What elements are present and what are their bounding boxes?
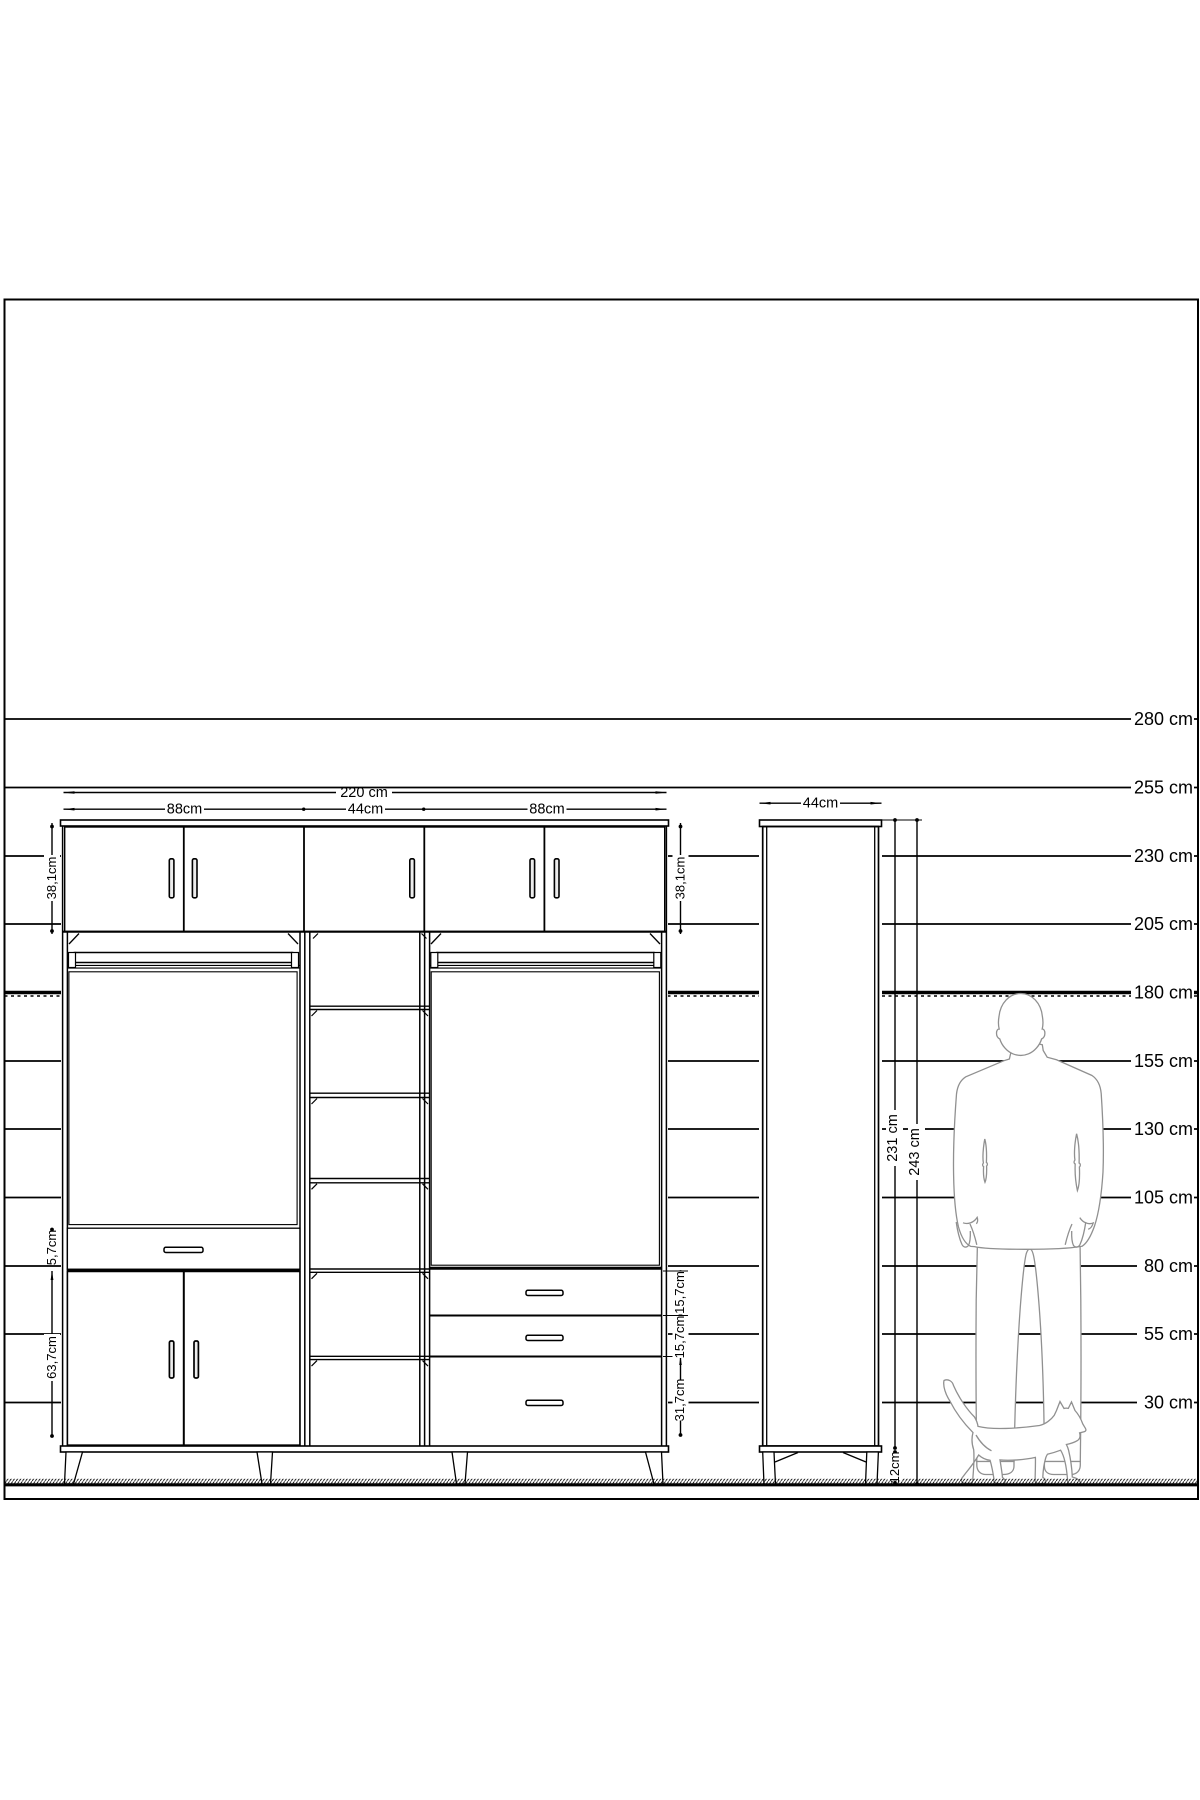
svg-text:38,1cm: 38,1cm bbox=[673, 857, 688, 900]
svg-text:55 cm: 55 cm bbox=[1144, 1324, 1193, 1344]
svg-text:80 cm: 80 cm bbox=[1144, 1256, 1193, 1276]
svg-text:220 cm: 220 cm bbox=[340, 785, 388, 801]
svg-text:44cm: 44cm bbox=[803, 796, 838, 812]
svg-text:30 cm: 30 cm bbox=[1144, 1393, 1193, 1413]
svg-text:205 cm: 205 cm bbox=[1134, 914, 1193, 934]
svg-text:5,7cm: 5,7cm bbox=[44, 1230, 59, 1265]
svg-text:255 cm: 255 cm bbox=[1134, 778, 1193, 798]
svg-text:15,7cm: 15,7cm bbox=[672, 1271, 687, 1314]
svg-text:243 cm: 243 cm bbox=[907, 1128, 923, 1176]
svg-text:130 cm: 130 cm bbox=[1134, 1119, 1193, 1139]
svg-text:231 cm: 231 cm bbox=[885, 1114, 901, 1162]
svg-text:280 cm: 280 cm bbox=[1134, 709, 1193, 729]
svg-text:230 cm: 230 cm bbox=[1134, 846, 1193, 866]
svg-text:38,1cm: 38,1cm bbox=[44, 857, 59, 900]
svg-text:88cm: 88cm bbox=[167, 802, 202, 818]
svg-text:12cm: 12cm bbox=[887, 1452, 902, 1484]
svg-text:15,7cm: 15,7cm bbox=[672, 1316, 687, 1359]
svg-text:180 cm: 180 cm bbox=[1134, 983, 1193, 1003]
svg-text:155 cm: 155 cm bbox=[1134, 1051, 1193, 1071]
svg-text:63,7cm: 63,7cm bbox=[44, 1336, 59, 1379]
svg-text:44cm: 44cm bbox=[348, 802, 383, 818]
svg-text:105 cm: 105 cm bbox=[1134, 1188, 1193, 1208]
svg-text:88cm: 88cm bbox=[529, 802, 564, 818]
svg-text:31,7cm: 31,7cm bbox=[672, 1379, 687, 1422]
